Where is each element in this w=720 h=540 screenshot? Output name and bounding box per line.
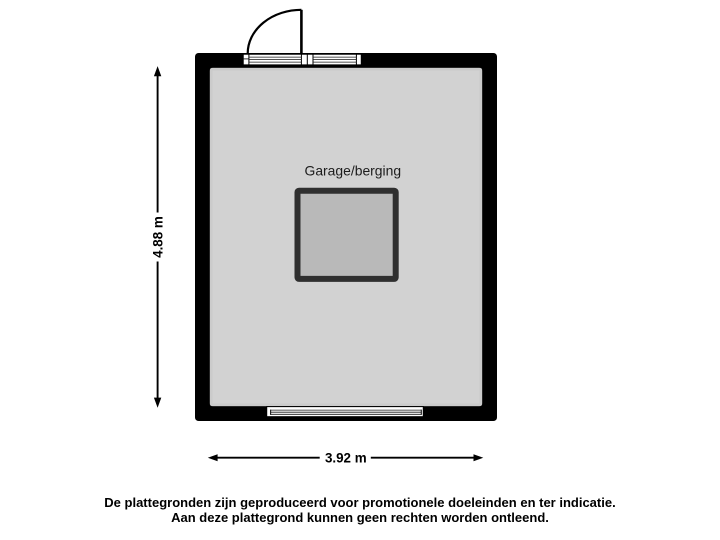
svg-text:Garage/berging: Garage/berging xyxy=(305,163,402,179)
svg-text:3.92 m: 3.92 m xyxy=(325,451,367,466)
svg-text:4.88 m: 4.88 m xyxy=(150,216,165,258)
